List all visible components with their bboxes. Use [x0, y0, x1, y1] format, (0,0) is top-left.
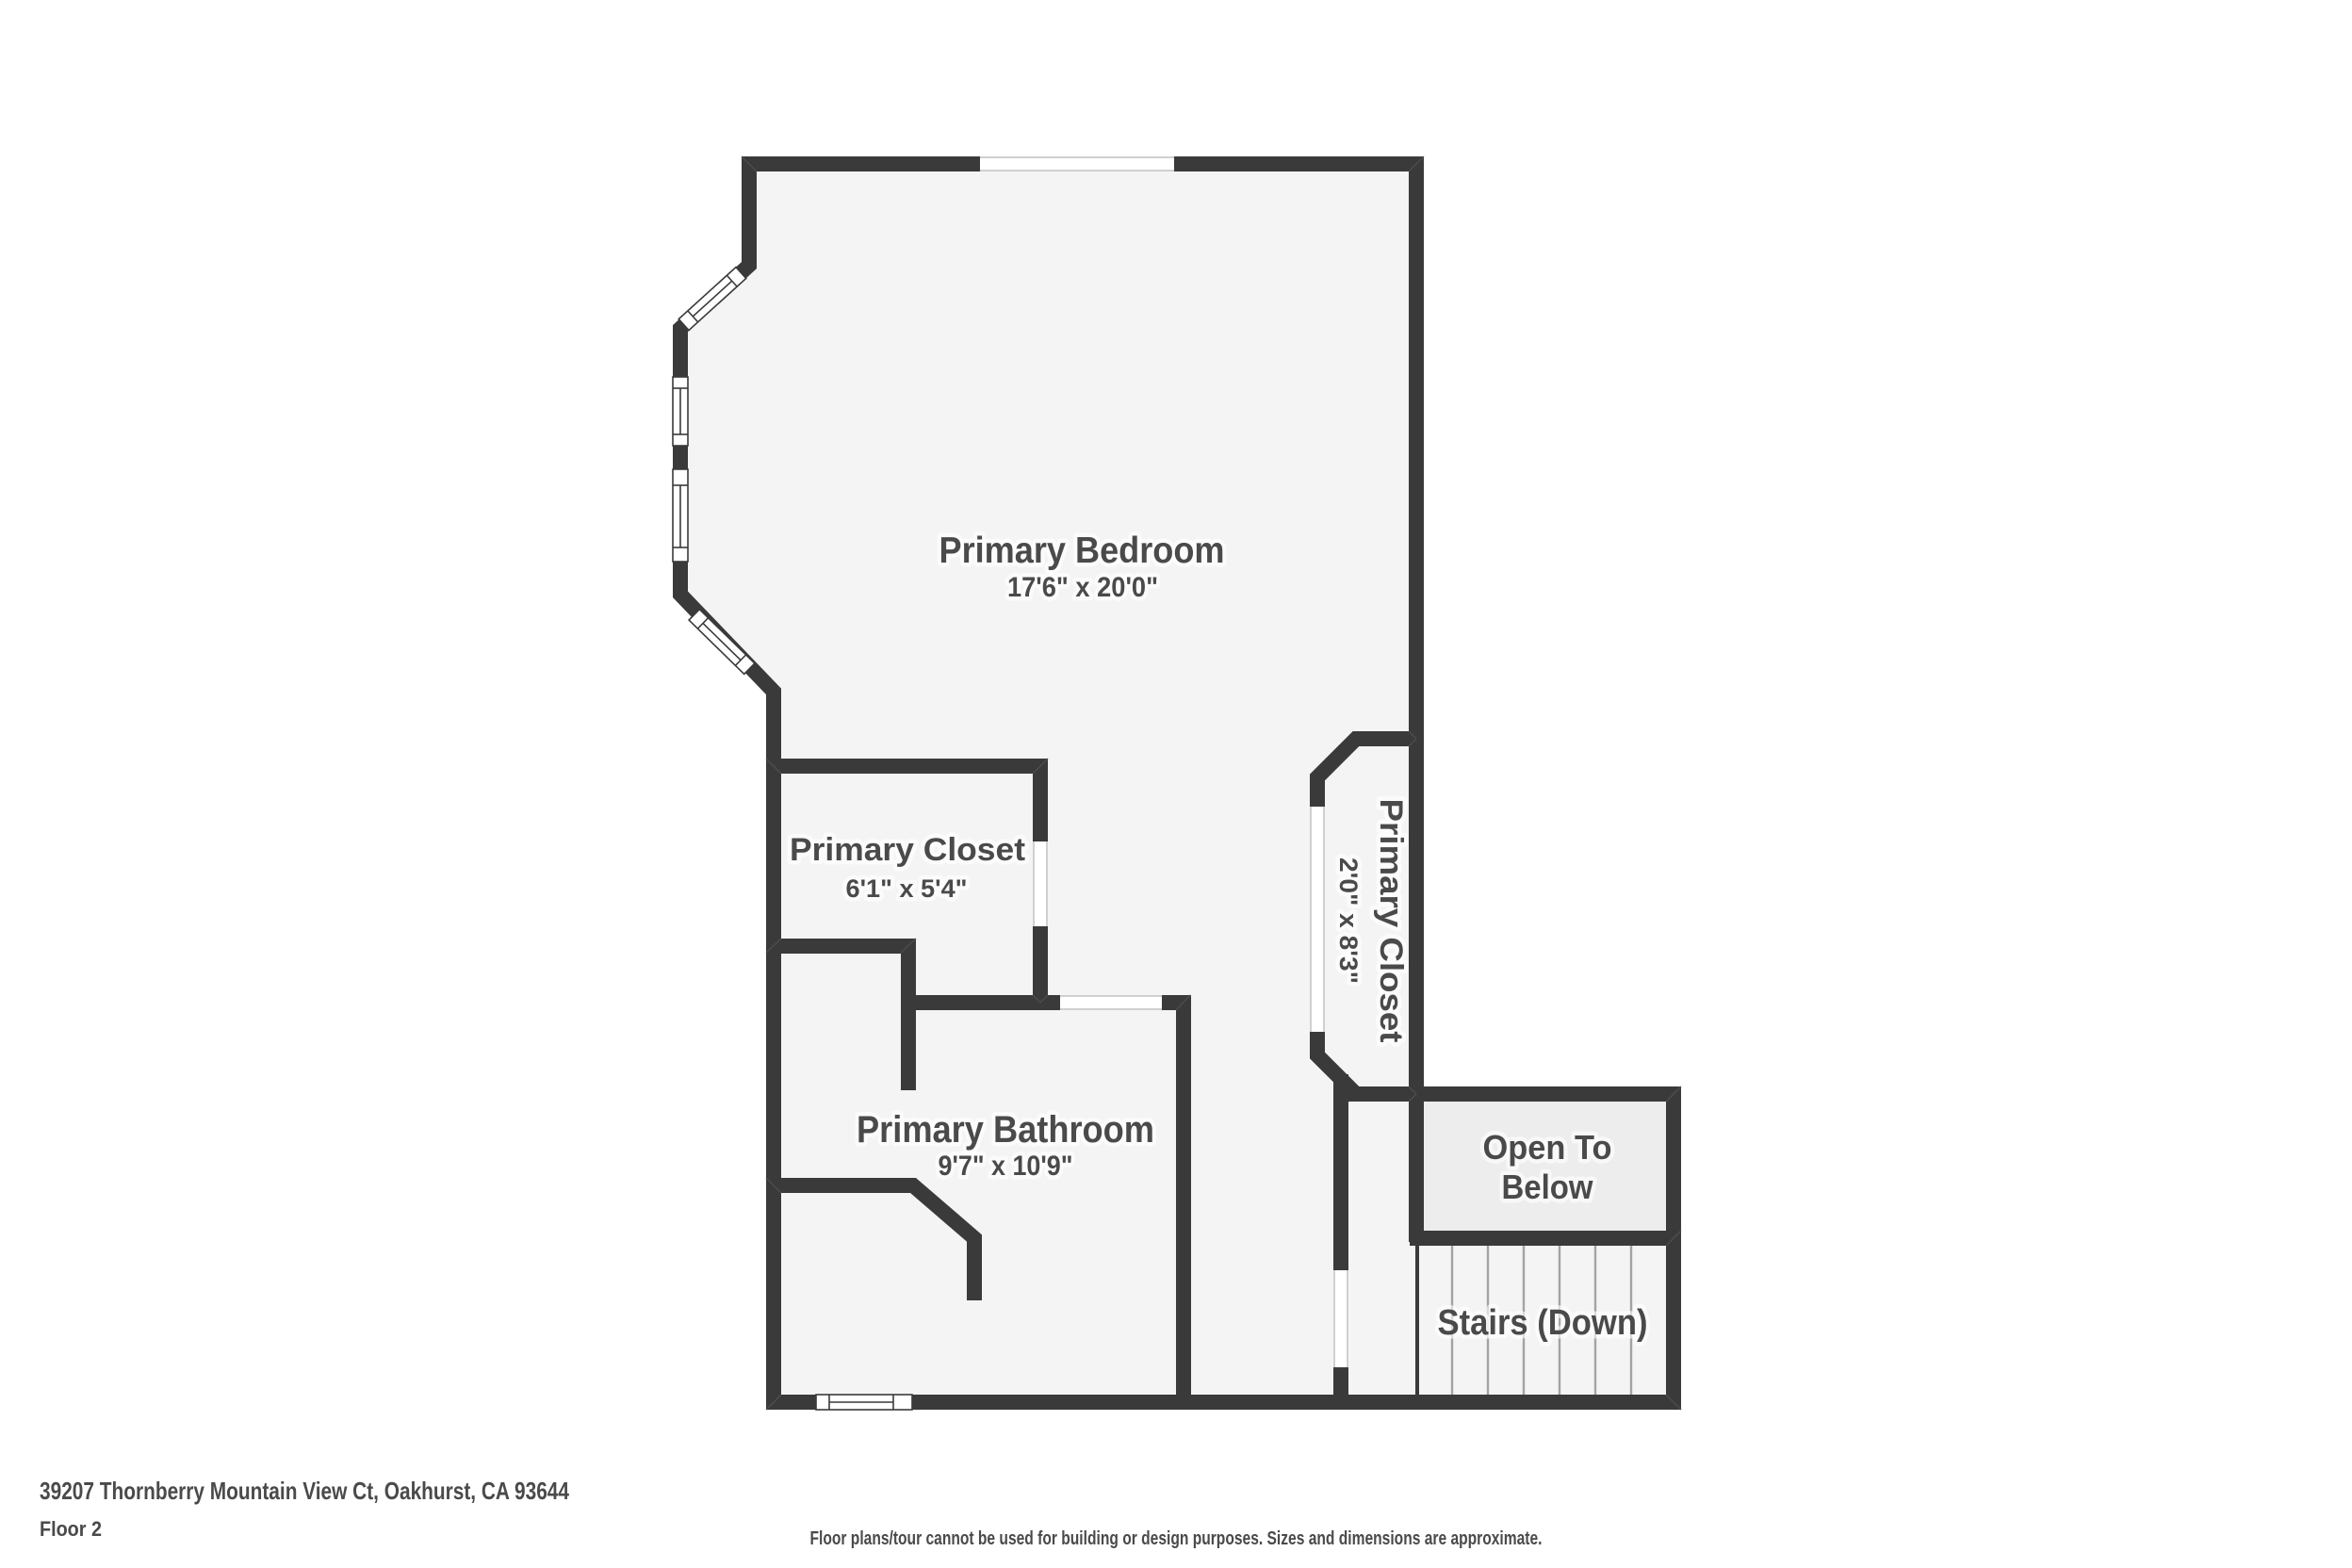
svg-text:Below: Below	[1502, 1168, 1594, 1206]
svg-text:Stairs (Down): Stairs (Down)	[1438, 1303, 1648, 1343]
svg-text:Primary Closet: Primary Closet	[1373, 799, 1409, 1043]
svg-text:6'1" x 5'4": 6'1" x 5'4"	[846, 874, 968, 903]
svg-text:Primary Bathroom: Primary Bathroom	[857, 1109, 1154, 1151]
svg-text:39207 Thornberry Mountain View: 39207 Thornberry Mountain View Ct, Oakhu…	[40, 1477, 569, 1505]
svg-text:Primary Bedroom: Primary Bedroom	[939, 531, 1225, 571]
svg-text:9'7" x 10'9": 9'7" x 10'9"	[939, 1151, 1073, 1182]
svg-text:Floor 2: Floor 2	[40, 1517, 102, 1541]
svg-text:Primary Closet: Primary Closet	[790, 832, 1025, 868]
svg-text:Floor plans/tour cannot be use: Floor plans/tour cannot be used for buil…	[810, 1528, 1543, 1549]
svg-text:Open To: Open To	[1483, 1128, 1612, 1167]
svg-text:17'6" x 20'0": 17'6" x 20'0"	[1007, 572, 1158, 603]
svg-text:2'0" x 8'3": 2'0" x 8'3"	[1334, 857, 1363, 984]
